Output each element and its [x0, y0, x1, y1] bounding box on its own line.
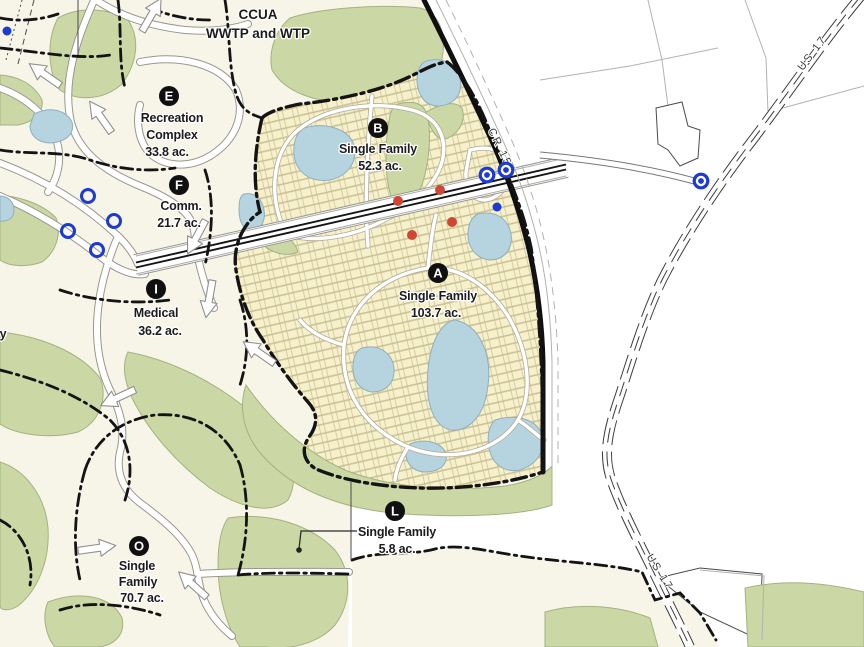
svg-text:Single Family: Single Family: [399, 289, 477, 303]
svg-text:36.2 ac.: 36.2 ac.: [138, 324, 182, 338]
svg-text:21.7 ac.: 21.7 ac.: [157, 216, 201, 230]
svg-text:103.7 ac.: 103.7 ac.: [411, 306, 461, 320]
marker-red-dot: [435, 185, 445, 195]
svg-text:Single: Single: [119, 559, 156, 573]
marker-blue-dot: [493, 203, 502, 212]
map-canvas: CCUA WWTP and WTP E Recreation Complex 3…: [0, 0, 864, 647]
marker-blue-donut-center: [503, 167, 509, 173]
svg-text:B: B: [373, 121, 382, 136]
ccua-label-line2: WWTP and WTP: [206, 26, 310, 41]
svg-text:I: I: [154, 282, 158, 297]
svg-text:Medical: Medical: [134, 306, 178, 320]
svg-text:70.7 ac.: 70.7 ac.: [120, 591, 164, 605]
svg-text:Single Family: Single Family: [358, 525, 436, 539]
svg-text:O: O: [134, 539, 144, 554]
svg-text:L: L: [391, 504, 399, 519]
svg-text:Comm.: Comm.: [160, 199, 201, 213]
svg-text:E: E: [165, 89, 174, 104]
svg-text:52.3 ac.: 52.3 ac.: [358, 159, 402, 173]
marker-blue-donut: [694, 174, 708, 188]
svg-text:Family: Family: [119, 575, 158, 589]
svg-text:Single Family: Single Family: [339, 142, 417, 156]
svg-text:5.8 ac.: 5.8 ac.: [379, 542, 416, 556]
marker-blue-donut: [499, 163, 513, 177]
svg-text:F: F: [175, 178, 183, 193]
marker-blue-donut-center: [484, 172, 490, 178]
marker-blue-dot: [3, 27, 12, 36]
svg-text:A: A: [433, 266, 443, 281]
marker-blue-donut-center: [698, 178, 704, 184]
clipped-label-fragment: y: [0, 327, 7, 341]
marker-red-dot: [393, 196, 403, 206]
svg-text:Recreation: Recreation: [141, 111, 204, 125]
svg-text:Complex: Complex: [146, 128, 198, 142]
marker-red-dot: [447, 217, 457, 227]
marker-red-dot: [407, 230, 417, 240]
land-use-plan-map: CCUA WWTP and WTP E Recreation Complex 3…: [0, 0, 864, 647]
svg-text:33.8 ac.: 33.8 ac.: [145, 145, 189, 159]
marker-blue-donut: [480, 168, 494, 182]
ccua-label-line1: CCUA: [239, 7, 278, 22]
